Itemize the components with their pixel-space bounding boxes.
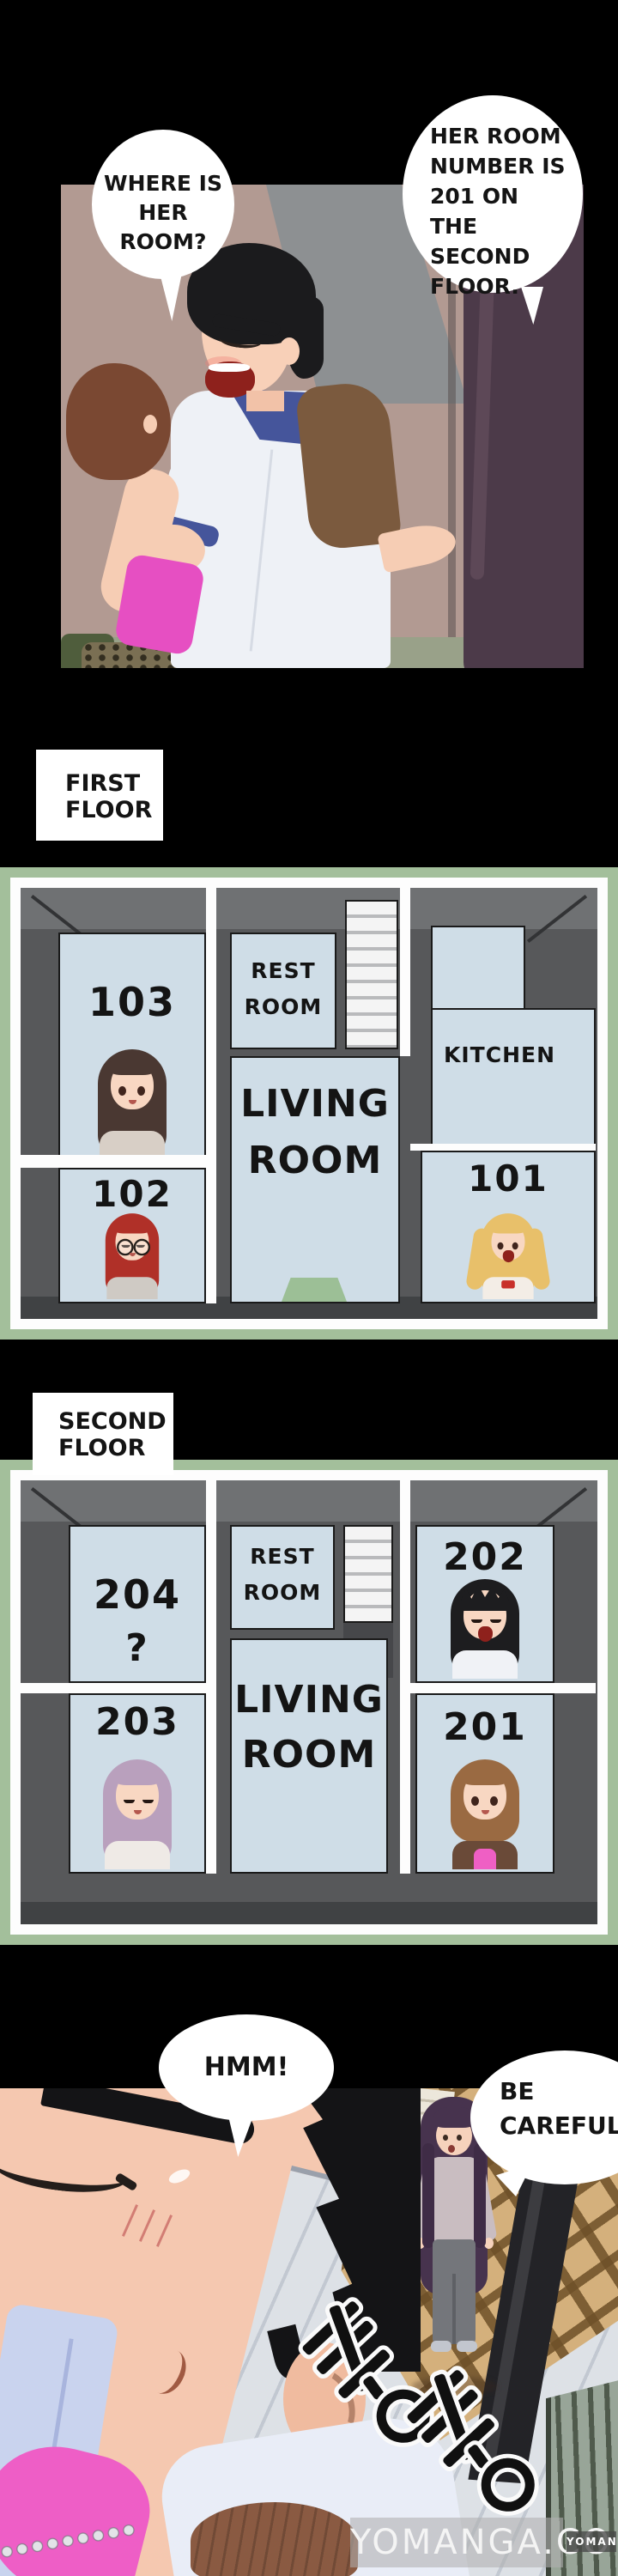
rest-room-1: REST ROOM [230, 933, 336, 1049]
bubble-line: NUMBER IS [430, 151, 574, 181]
kitchen-upper [431, 926, 525, 1020]
bubble-line: HMM! [159, 2052, 334, 2082]
room-103: 103 [58, 933, 206, 1163]
avatar-girl-blonde-twintails [473, 1212, 542, 1299]
rest-room-2: REST ROOM [230, 1525, 335, 1630]
room-203-number: 203 [70, 1700, 204, 1744]
room-201-number: 201 [417, 1705, 553, 1749]
closeup-eye-closed [0, 2140, 130, 2198]
living-room-text: ROOM [232, 1142, 398, 1180]
staircase-2 [343, 1525, 393, 1623]
woman-hair-front [474, 2143, 486, 2248]
room-102-number: 102 [60, 1173, 204, 1215]
second-floor-label: SECOND FLOOR [33, 1393, 173, 1475]
bubble-line: HER ROOM? [92, 198, 234, 257]
living-room-text: LIVING [232, 1085, 398, 1123]
rest-room-text: ROOM [232, 1575, 333, 1611]
woman-eye [457, 2135, 462, 2141]
woman-slipper [431, 2341, 451, 2352]
first-floor-label-line: FIRST [65, 770, 163, 797]
bubble-line: 201 ON [430, 181, 574, 211]
rest-room-text: ROOM [232, 989, 335, 1025]
room-201: 201 [415, 1693, 554, 1874]
second-floor-plan: 204 ? REST ROOM 202 LIVING ROOM 203 [0, 1460, 618, 1945]
wall-gap [400, 1480, 410, 1874]
watermark-bar: YOMANGA.CO [350, 2518, 563, 2567]
room-203: 203 [69, 1693, 206, 1874]
woman-bangs [433, 2107, 476, 2128]
carried-woman-ear [143, 415, 157, 434]
man-ear [279, 337, 300, 365]
woman-hair-front [422, 2143, 434, 2248]
room-101: 101 [421, 1151, 596, 1303]
woman-mouth-open [448, 2145, 455, 2153]
entrance-mat [282, 1278, 347, 1302]
living-room-2: LIVING ROOM [230, 1638, 388, 1874]
bubble-line: WHERE IS [92, 169, 234, 198]
woman-slipper [457, 2341, 477, 2352]
man-teeth [209, 363, 250, 372]
closeup-mouth-smirk [142, 2343, 193, 2400]
second-floor-label-line: FLOOR [58, 1435, 173, 1461]
comic-page: WHERE IS HER ROOM? HER ROOM NUMBER IS 20… [0, 0, 618, 2576]
room-102: 102 [58, 1168, 206, 1303]
first-floor-plan: 103 REST ROOM KITCHEN LIVING ROOM 102 [0, 867, 618, 1340]
wall-gap [21, 1683, 206, 1693]
rest-room-text: REST [232, 1539, 333, 1575]
bubble-line: CAREFUL [500, 2109, 618, 2143]
room-103-number: 103 [60, 979, 204, 1025]
bubble-line: HER ROOM [430, 121, 574, 151]
closeup-blush-line [156, 2215, 173, 2247]
avatar-girl-long-dark-hair [88, 1048, 177, 1159]
first-floor-label: FIRST FLOOR [36, 750, 163, 841]
closeup-blush-line [122, 2204, 138, 2237]
speech-bubble-hmm: HMM! [159, 2014, 334, 2121]
woman-eye [443, 2135, 448, 2141]
man-neck [246, 391, 284, 411]
living-room-text: LIVING [232, 1681, 386, 1719]
bubble-line: FLOOR. [430, 271, 574, 301]
watermark-small-tag: YOMANGA [566, 2531, 616, 2552]
speech-bubble-where: WHERE IS HER ROOM? [92, 130, 234, 279]
wall-gap [206, 1480, 216, 1874]
room-202: 202 [415, 1525, 554, 1683]
avatar-girl-short-brown-hair [440, 1758, 530, 1869]
staircase-1 [345, 900, 398, 1049]
plan-wall-bevel [21, 888, 597, 929]
first-floor-label-line: FLOOR [65, 797, 163, 823]
room-204: 204 ? [69, 1525, 206, 1683]
wall-gap [410, 1683, 596, 1693]
room-204-number: 204 [70, 1571, 204, 1618]
bubble-line: THE SECOND [430, 211, 574, 271]
room-101-number: 101 [422, 1157, 594, 1200]
room-202-number: 202 [417, 1535, 553, 1579]
kitchen [431, 1008, 596, 1152]
carried-woman-hair-closeup [191, 2502, 358, 2576]
speech-bubble-room-201: HER ROOM NUMBER IS 201 ON THE SECOND FLO… [403, 95, 583, 293]
closeup-blush-line [139, 2209, 155, 2242]
carried-woman-pink-top [113, 553, 205, 656]
avatar-boy-black-hair-laughing [440, 1577, 530, 1679]
avatar-girl-long-lavender-hair [93, 1758, 182, 1869]
bubble-line: BE [500, 2075, 618, 2109]
kitchen-label: KITCHEN [431, 1037, 568, 1073]
wall-gap [410, 1144, 596, 1151]
second-floor-label-line: SECOND [58, 1408, 173, 1435]
plan-wall-bevel [21, 1480, 597, 1522]
wall-gap [206, 888, 216, 1303]
avatar-girl-red-bob-glasses [97, 1212, 167, 1299]
wall-gap [21, 1155, 206, 1168]
rest-room-text: REST [232, 953, 335, 989]
wall-gap [400, 888, 410, 1056]
plan-wall-bevel-bottom [21, 1902, 597, 1924]
closeup-tear-gleam [167, 2166, 191, 2185]
room-204-question-mark: ? [70, 1626, 204, 1670]
brown-jacket [294, 380, 402, 551]
living-room-1: LIVING ROOM [230, 1056, 400, 1303]
woman-jeans-seam [452, 2274, 456, 2344]
watermark-small-text: YOMANGA [566, 2536, 618, 2548]
living-room-text: ROOM [232, 1736, 386, 1774]
